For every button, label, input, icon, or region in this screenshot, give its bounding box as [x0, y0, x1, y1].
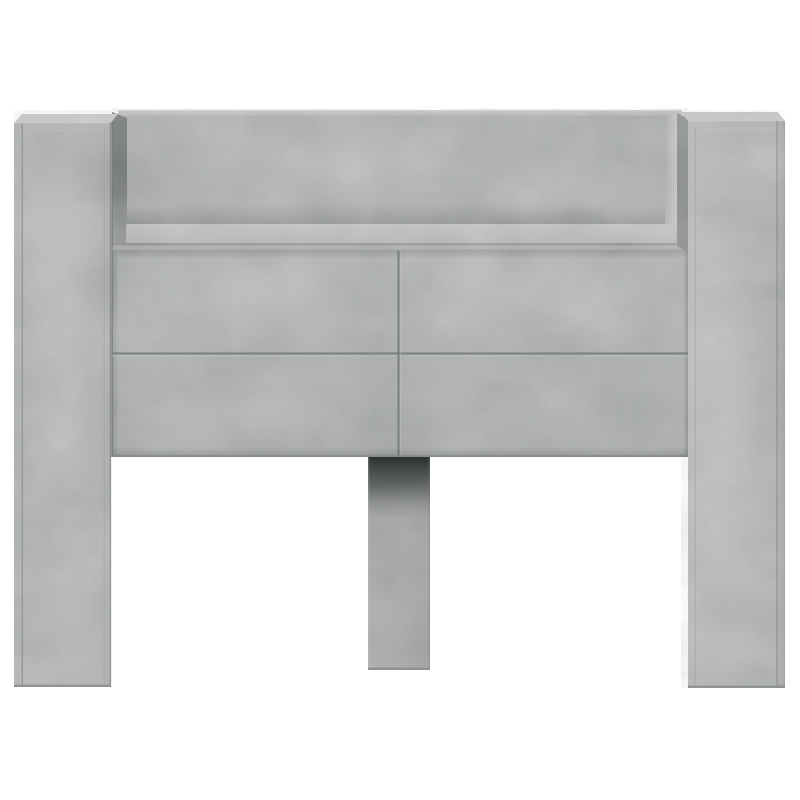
- product-image: [0, 0, 800, 800]
- right-pillar-inset-line: [695, 128, 776, 129]
- center-leg-right-edge: [428, 457, 430, 670]
- left-pillar-inset-line: [23, 130, 104, 131]
- vertical-panel-seam: [397, 251, 399, 458]
- left-pillar-gap-line: [111, 122, 113, 457]
- product-photo-stage: [0, 0, 800, 800]
- left-pillar-inset-line: [104, 130, 105, 685]
- right-leg-bottom-edge: [688, 686, 785, 688]
- headboard-cabinet: [0, 0, 800, 800]
- body-bottom-edge: [112, 455, 688, 457]
- top-edge-highlight: [118, 110, 682, 111]
- left-pillar-top-edge-line: [14, 123, 111, 124]
- vertical-seam-highlight: [400, 251, 401, 457]
- lip-bottom-line: [112, 250, 688, 251]
- right-pillar-outer-edge: [784, 121, 785, 688]
- center-leg-contact-shadow: [368, 457, 430, 519]
- center-leg-bottom-edge: [368, 668, 430, 670]
- right-pillar-top-edge-line: [688, 121, 785, 122]
- right-pillar-inset-line: [695, 128, 696, 685]
- right-pillar-corner-groove: [776, 121, 777, 688]
- left-leg-bottom-edge: [14, 685, 111, 687]
- center-leg-left-edge: [368, 457, 370, 670]
- left-pillar-corner-groove: [22, 123, 23, 687]
